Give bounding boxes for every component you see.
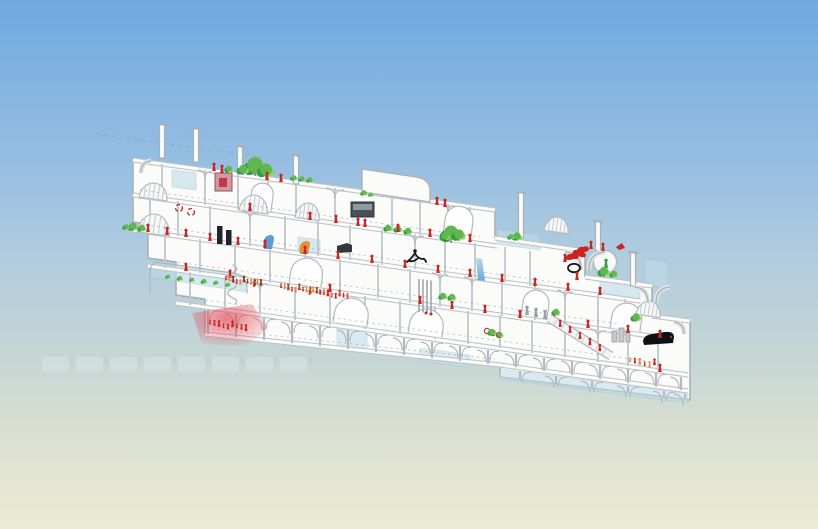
pink-artwork-detail [219, 178, 227, 187]
city-model-block [626, 332, 630, 342]
black-speaker [226, 230, 232, 245]
city-model-block [612, 331, 617, 342]
dark-screen-detail [353, 204, 372, 210]
black-speaker [217, 226, 223, 244]
city-model-block [619, 328, 624, 342]
illustration-canvas [0, 0, 818, 529]
architectural-axonometric-illustration [0, 0, 818, 529]
gymnast-head [413, 249, 417, 253]
car-light [670, 336, 672, 338]
